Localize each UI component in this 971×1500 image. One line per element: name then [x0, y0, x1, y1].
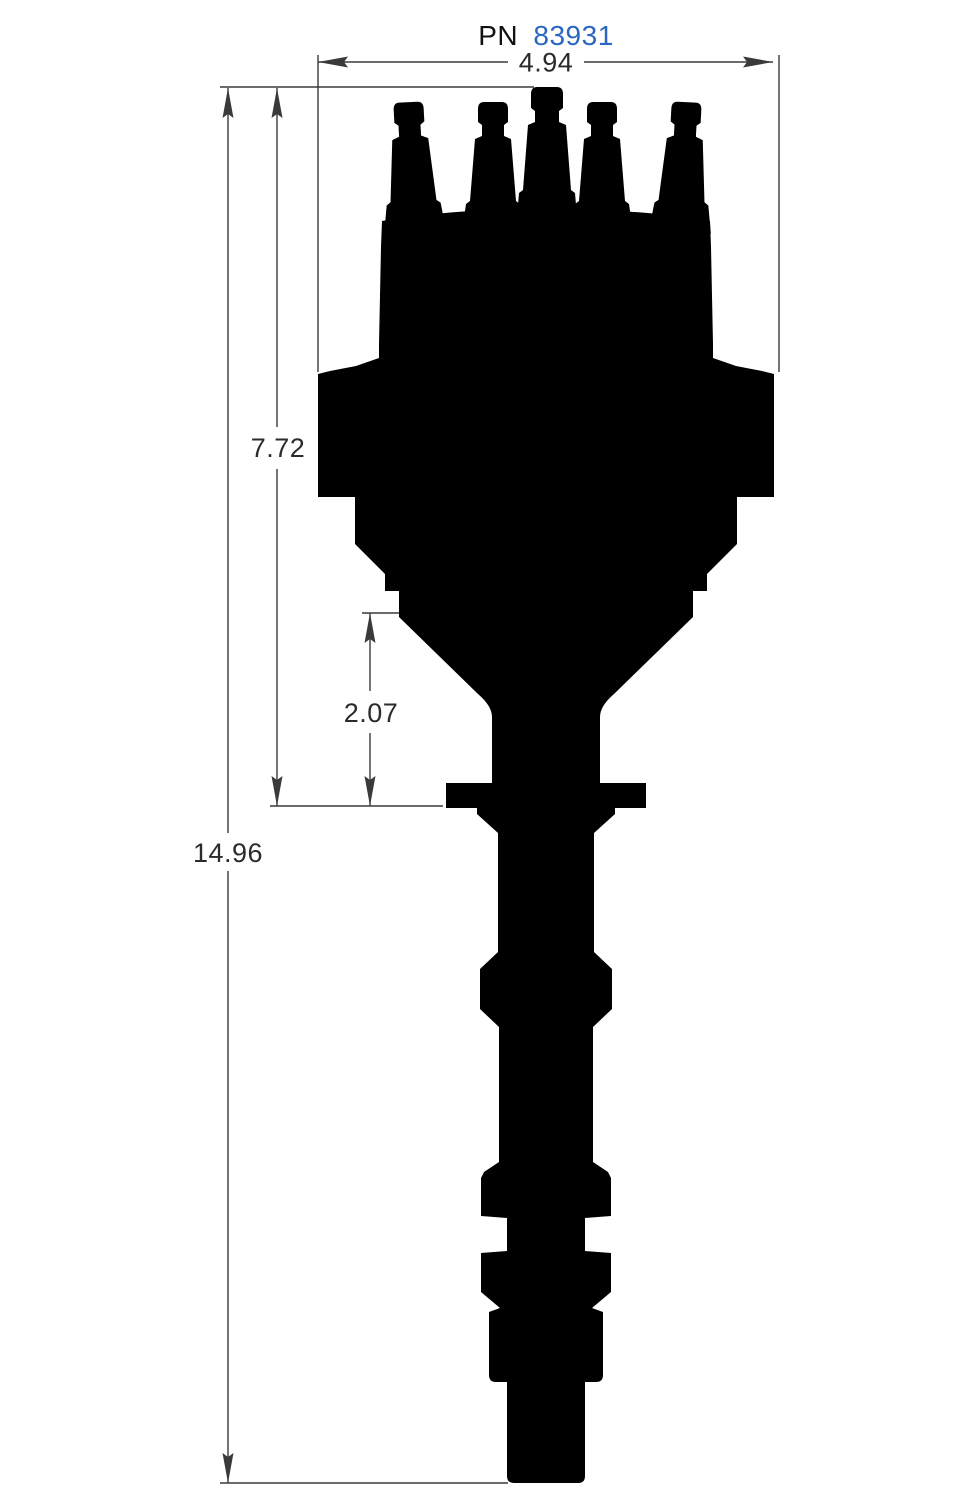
arrow-down-overall-icon [223, 1453, 234, 1483]
arrow-up-lower-icon [365, 613, 376, 643]
arrow-down-cap-icon [272, 776, 283, 806]
arrow-left-icon [318, 57, 348, 68]
cap-tower-4 [571, 102, 633, 232]
arrow-up-cap-icon [272, 88, 283, 118]
drawing-canvas: PN 83931 4.94 7.72 2.07 14.96 [0, 0, 971, 1500]
distributor-silhouette [318, 87, 774, 1483]
label-overall-height: 14.96 [193, 838, 263, 868]
distributor-dimension-diagram: PN 83931 4.94 7.72 2.07 14.96 [0, 0, 971, 1500]
label-cap-width: 4.94 [519, 48, 574, 78]
cap-tower-2 [462, 102, 524, 232]
label-lower-section: 2.07 [344, 698, 399, 728]
part-number-value: 83931 [533, 20, 613, 51]
cap-tower-5 [649, 101, 718, 234]
distributor-body [318, 209, 774, 1483]
label-cap-height: 7.72 [251, 433, 306, 463]
cap-tower-center [514, 87, 580, 252]
part-number-label: PN 83931 [478, 20, 614, 51]
cap-tower-1 [377, 101, 446, 234]
part-number-prefix: PN [478, 20, 518, 51]
arrow-up-overall-icon [223, 88, 234, 118]
arrow-down-lower-icon [365, 776, 376, 806]
arrow-right-icon [743, 57, 773, 68]
